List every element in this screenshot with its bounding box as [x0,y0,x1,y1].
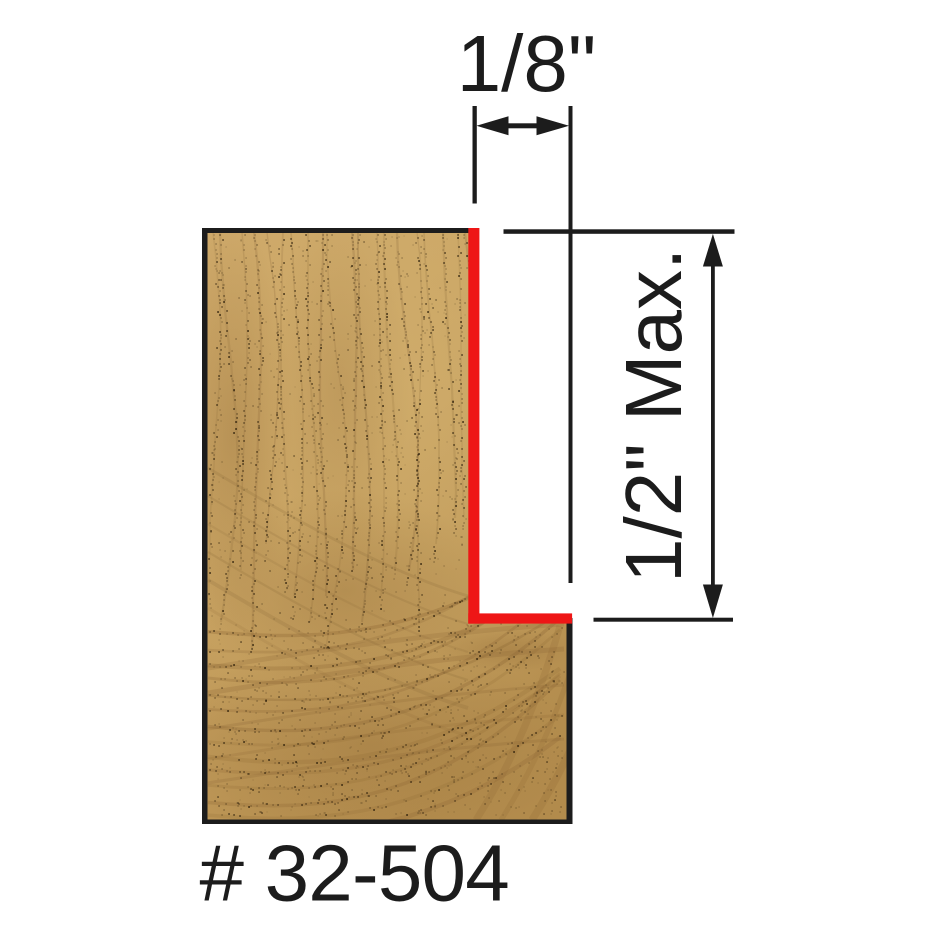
svg-text:1/8": 1/8" [457,19,597,108]
svg-text:1/2" Max.: 1/2" Max. [609,248,698,583]
svg-text:# 32-504: # 32-504 [200,828,509,917]
